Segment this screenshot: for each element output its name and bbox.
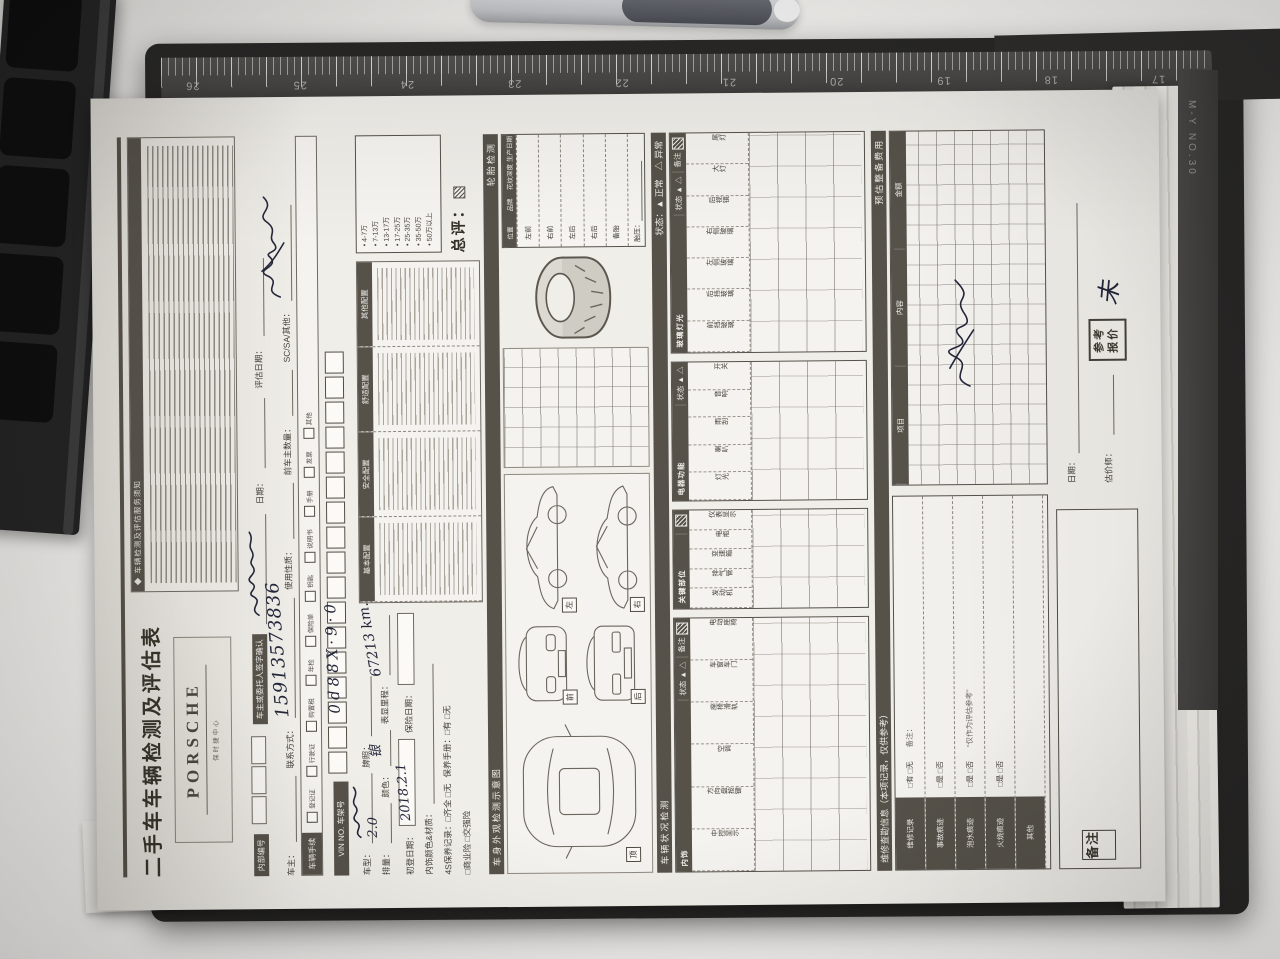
vin-row: VIN NO. 车架号 0d88X·9·0 bbox=[323, 135, 353, 875]
documents-items: 登记证 行驶证 购置税 年检 保险单 钥匙 bbox=[303, 412, 318, 823]
config-column: 安全配置 bbox=[358, 431, 481, 517]
check-item: 喇叭 bbox=[689, 445, 751, 473]
ruler-number: 19 bbox=[936, 74, 950, 86]
laptop-key bbox=[0, 340, 58, 423]
header-row-2: 车主： 联系方式： 15913573836 使用性质： 前车主数量： SC/SA… bbox=[267, 136, 297, 876]
repair-row-extra: “仅作为评估参考” bbox=[964, 689, 976, 747]
ruler-number: 23 bbox=[507, 77, 521, 89]
view-tag-front: 前 bbox=[563, 689, 578, 704]
document-item-label: 其他 bbox=[303, 412, 313, 425]
tire-column-header: 品牌 bbox=[502, 191, 516, 219]
checkbox bbox=[305, 721, 316, 732]
tire-column-header: 生产日期 bbox=[502, 135, 516, 163]
price-range-item: • 7-13万 bbox=[371, 142, 383, 246]
cost-table-signature-scribble bbox=[935, 274, 984, 394]
document-item: 购置税 bbox=[305, 698, 316, 732]
check-item: 中控显示 bbox=[692, 829, 754, 872]
config-fine-print bbox=[378, 352, 476, 425]
laptop-key bbox=[5, 0, 82, 72]
check-item: 开关 bbox=[688, 362, 750, 390]
inspection-form: 二手车车辆检测及评估表 PORSCHE 保时捷中心 ◆ 车辆检测及评估服务须知 … bbox=[97, 103, 1164, 902]
document-item-label: 手册 bbox=[304, 490, 314, 503]
paint-check-grid bbox=[503, 347, 650, 468]
tire-section-label: 轮胎检测 bbox=[484, 142, 497, 186]
document-item: 登记证 bbox=[306, 789, 317, 823]
color-line: 银 bbox=[379, 730, 391, 766]
repair-row-options: □是 □否 bbox=[994, 761, 1005, 787]
condition-section-label: 车辆状况检测 bbox=[658, 799, 672, 865]
check-item: 左侧玻璃 bbox=[687, 258, 749, 290]
form-header: 二手车车辆检测及评估表 PORSCHE 保时捷中心 ◆ 车辆检测及评估服务须知 bbox=[127, 136, 243, 877]
handwritten-reg-date: 2018.2.1 bbox=[394, 763, 414, 822]
price-range-item: • 25-35万 bbox=[403, 142, 415, 246]
sc-sa-label: SC/SA/其他： bbox=[280, 309, 292, 362]
reg-date-box: 2018.2.1 bbox=[398, 739, 416, 827]
check-item: 大灯 bbox=[686, 164, 748, 196]
ruler-number: 25 bbox=[293, 79, 307, 91]
laptop-key bbox=[0, 77, 76, 160]
logo-rule bbox=[205, 665, 207, 815]
cost-column-header: 金额 bbox=[892, 132, 904, 250]
check-item: 右侧玻璃 bbox=[687, 227, 749, 259]
handwritten-not-yet: 未 bbox=[1088, 279, 1125, 306]
contact-line: 15913573836 bbox=[283, 598, 296, 718]
ruler-number: 22 bbox=[614, 76, 628, 88]
usage-line bbox=[282, 483, 294, 539]
diagram-band: 顶 前 后 bbox=[501, 133, 651, 874]
interior-line bbox=[421, 664, 434, 804]
car-side-right-view bbox=[581, 480, 644, 615]
document-item: 年检 bbox=[305, 659, 316, 686]
mileage-label: 表显里程： bbox=[379, 682, 391, 725]
repair-row: 火烧痕迹 □是 □否 bbox=[983, 496, 1016, 869]
reg-date-label: 初登日期： bbox=[404, 832, 416, 875]
check-item: 座椅滑轨 bbox=[691, 702, 753, 745]
document-item-label: 说明书 bbox=[304, 529, 314, 549]
check-tables-band: 内饰状态 ▲ △备注 中控显示方向盘按键空调座椅滑轨车窗车门电动座椅 关键部位 … bbox=[669, 131, 871, 873]
note-header: 备注 bbox=[676, 618, 688, 657]
checkbox bbox=[305, 636, 316, 647]
document-item-label: 行驶证 bbox=[306, 744, 316, 764]
config-column: 舒适配置 bbox=[358, 346, 481, 432]
document-item-label: 钥匙 bbox=[305, 575, 315, 588]
internal-no-label: 内部编号 bbox=[254, 834, 269, 876]
mileage-line: 67213 km. bbox=[378, 616, 391, 676]
stamp-icon bbox=[675, 514, 687, 526]
cost-column-header: 内容 bbox=[893, 249, 905, 367]
check-table-name: 内饰 bbox=[679, 844, 690, 871]
form-title: 二手车车辆检测及评估表 bbox=[135, 624, 166, 877]
ruler-number: 17 bbox=[1151, 73, 1165, 85]
overall-grade-label: 总评： bbox=[447, 134, 469, 252]
check-grid bbox=[752, 509, 865, 608]
valuer-label: 估价师： bbox=[1102, 449, 1114, 483]
tire-table: 位置品牌花纹深度生产日期 左前 右前 左后 bbox=[501, 133, 646, 248]
displacement-line: 2.0 bbox=[380, 804, 392, 844]
status-header: 状态 ▲ △ bbox=[674, 362, 685, 405]
check-item: 前挡玻璃 bbox=[687, 321, 749, 353]
check-table-key-parts: 关键部位 发动机排气管变速箱电瓶仪表显示 bbox=[672, 508, 869, 610]
ruler-brand-text: M-Y NO.30 bbox=[1186, 100, 1197, 177]
tire-position: 右后 bbox=[590, 218, 600, 246]
check-item: 尾灯 bbox=[686, 133, 748, 165]
car-diagram-panel: 顶 前 后 bbox=[504, 473, 653, 874]
footer-right: 日期： 估价师： 参考 报价 未 bbox=[1059, 129, 1138, 484]
tire-table-row: 左前 bbox=[516, 135, 539, 247]
maintenance-record-options: 4S保养记录：□齐全 □无 bbox=[441, 784, 454, 875]
price-range-item: • 4-7万 bbox=[360, 142, 372, 246]
repair-table: 维修记录 □有 □无 备注： 事故痕迹 □是 □否 泡水痕迹 □是 □否 “仅作… bbox=[892, 494, 1051, 870]
stamp-icon bbox=[676, 622, 688, 634]
repair-row-label: 事故痕迹 bbox=[926, 797, 956, 869]
handwritten-displacement: 2.0 bbox=[366, 817, 381, 838]
status-header: 状态 ▲ △ bbox=[677, 657, 688, 700]
check-table-name: 关键部位 bbox=[676, 564, 687, 608]
tire-table-row: 左后 bbox=[560, 134, 583, 246]
eval-date-label: 评估日期： bbox=[253, 346, 265, 389]
config-column: 其他配置 bbox=[357, 261, 480, 347]
brand-subtitle: 保时捷中心 bbox=[209, 638, 221, 842]
check-table-name: 玻璃灯光 bbox=[674, 308, 685, 352]
brand-name: PORSCHE bbox=[182, 638, 204, 842]
repair-row-label: 其他 bbox=[1016, 796, 1046, 868]
vin-boxes: 0d88X·9·0 bbox=[325, 348, 353, 773]
color-label: 颜色： bbox=[379, 772, 391, 798]
check-grid bbox=[753, 617, 867, 871]
owner-label: 车主： bbox=[285, 850, 297, 876]
documents-row: 车辆手续 登记证 行驶证 购置税 年检 保险单 bbox=[295, 136, 323, 876]
config-column: 基本配置 bbox=[359, 516, 482, 602]
porsche-logo: PORSCHE 保时捷中心 bbox=[173, 636, 233, 842]
document-item: 钥匙 bbox=[304, 575, 315, 602]
check-table-name: 电器功能 bbox=[675, 456, 686, 500]
document-item-label: 登记证 bbox=[307, 789, 317, 809]
quote-row: 估价师： 参考 报价 未 bbox=[1087, 129, 1128, 483]
checkbox bbox=[306, 766, 317, 777]
laptop-key bbox=[0, 165, 70, 248]
check-item: 电动座椅 bbox=[690, 618, 752, 661]
config-column-header: 基本配置 bbox=[359, 517, 375, 601]
checkbox bbox=[304, 591, 315, 602]
ruler-side-arm: M-Y NO.30 bbox=[1178, 70, 1218, 710]
view-tag-right: 右 bbox=[630, 597, 645, 612]
valuer-line bbox=[1102, 375, 1115, 435]
config-fine-print bbox=[378, 437, 476, 510]
signature-scribble-large bbox=[253, 195, 290, 301]
tire-table-header: 位置品牌花纹深度生产日期 bbox=[502, 135, 517, 247]
repair-row: 事故痕迹 □是 □否 bbox=[923, 496, 956, 869]
model-scribble bbox=[348, 784, 364, 840]
owner-confirm-label: 车主或委托人签字确认 bbox=[252, 634, 268, 724]
terms-fine-print bbox=[147, 145, 237, 583]
form-top-rule bbox=[117, 137, 127, 877]
view-tag-left: 左 bbox=[562, 597, 577, 612]
cost-table: 项目内容金额 bbox=[889, 129, 1048, 485]
check-item: 音响 bbox=[688, 390, 750, 418]
marker-pen-tip bbox=[774, 0, 801, 22]
price-range-item: • 50万以上 bbox=[425, 142, 437, 246]
car-side-left-view bbox=[511, 480, 574, 615]
ruler-number: 20 bbox=[829, 75, 843, 87]
contact-label: 联系方式： bbox=[284, 726, 296, 769]
documents-label: 车辆手续 bbox=[302, 833, 322, 875]
check-item: 空调 bbox=[691, 744, 753, 787]
config-fine-print bbox=[377, 267, 475, 340]
price-range-item: • 17-25万 bbox=[392, 142, 404, 246]
marker-pen-cap bbox=[622, 0, 773, 26]
check-item: 后挡玻璃 bbox=[687, 289, 749, 321]
checkbox bbox=[306, 812, 317, 823]
car-top-view bbox=[515, 716, 644, 867]
config-column-header: 其他配置 bbox=[357, 262, 373, 346]
check-item: 变速箱 bbox=[689, 549, 751, 569]
prev-owners-line bbox=[281, 370, 293, 416]
photo-of-inspection-form: { "photo": { "desk_color": "#e6e5e2", "c… bbox=[0, 0, 1280, 959]
confirm-date-label: 日期： bbox=[254, 479, 266, 505]
checkbox bbox=[305, 675, 316, 686]
price-range-item: • 35-50万 bbox=[414, 142, 426, 246]
document-item: 其他 bbox=[303, 412, 314, 439]
ruler-number: 26 bbox=[185, 79, 199, 91]
document-item-label: 购置税 bbox=[306, 698, 316, 718]
tire-table-row: 右后 bbox=[582, 134, 605, 246]
repair-row-options: □是 □否 bbox=[934, 761, 945, 787]
notes-label: 备注 bbox=[1082, 830, 1116, 860]
ins-date-label: 保险日期： bbox=[403, 690, 415, 733]
repair-row-options: □有 □无 bbox=[904, 761, 915, 787]
document-item-label: 保险单 bbox=[305, 614, 315, 634]
repair-section-label: 维修查勘信息（本项记录，仅供参考） bbox=[877, 710, 891, 863]
config-table: 基本配置 安全配置 舒适配置 其他配置 bbox=[356, 260, 483, 603]
tire-pressure: 胎压： bbox=[627, 134, 645, 246]
note-header: 备注 bbox=[672, 133, 684, 172]
owner-line bbox=[284, 776, 297, 842]
check-table-electrics: 电器功能状态 ▲ △ 灯光喇叭雨刮音响开关 bbox=[671, 360, 868, 502]
check-item: 仪表显示 bbox=[689, 510, 751, 530]
check-item: 雨刮 bbox=[688, 417, 750, 445]
plate-line bbox=[360, 676, 373, 736]
check-table-glass-lights: 玻璃灯光状态 ▲ △备注 前挡玻璃后挡玻璃左侧玻璃右侧玻璃后视镜大灯尾灯 bbox=[669, 131, 867, 354]
config-fine-print bbox=[379, 522, 477, 595]
ruler-number: 21 bbox=[722, 76, 736, 88]
vin-label: VIN NO. 车架号 bbox=[333, 781, 349, 875]
laptop-key bbox=[0, 253, 64, 336]
terms-box: ◆ 车辆检测及评估服务须知 bbox=[127, 136, 239, 592]
view-tag-top: 顶 bbox=[626, 847, 641, 862]
document-item: 手册 bbox=[303, 490, 314, 517]
check-item: 方向盘按键 bbox=[692, 787, 754, 830]
tire-table-row: 备胎 bbox=[605, 134, 628, 246]
checkbox bbox=[304, 506, 315, 517]
check-item: 电瓶 bbox=[689, 530, 751, 550]
tire-position: 右前 bbox=[545, 219, 555, 247]
check-grid bbox=[751, 361, 864, 500]
cost-column-header: 项目 bbox=[894, 367, 906, 485]
repair-row: 泡水痕迹 □是 □否 “仅作为评估参考” bbox=[953, 496, 986, 869]
booklet-options: 保养手册：□有 □无 bbox=[441, 705, 454, 777]
ins-date-box bbox=[397, 613, 415, 685]
ruler-number: 18 bbox=[1044, 73, 1058, 85]
insurance-options: □商业险 □交强险 bbox=[461, 811, 474, 875]
config-column-header: 舒适配置 bbox=[358, 347, 374, 431]
repair-row-label: 泡水痕迹 bbox=[956, 797, 986, 869]
grade-panel: • 4-7万• 7-13万• 13-17万• 17-25万• 25-35万• 3… bbox=[355, 134, 469, 253]
interior-label: 内饰颜色&材质： bbox=[423, 810, 436, 875]
checkbox bbox=[303, 467, 314, 478]
handwritten-color: 银 bbox=[365, 744, 385, 759]
confirm-date-line bbox=[253, 399, 266, 469]
footer-band: 备注 日期： 估价师： 参考 报价 未 bbox=[1053, 129, 1143, 870]
repair-row-options: □是 □否 bbox=[964, 761, 975, 787]
tire-position: 左后 bbox=[568, 218, 578, 246]
internal-no-boxes bbox=[250, 734, 269, 824]
checkbox bbox=[304, 552, 315, 563]
stamp-icon bbox=[672, 137, 684, 149]
tire-column-header: 位置 bbox=[503, 219, 517, 247]
footer-date-line bbox=[1065, 203, 1079, 453]
check-item: 灯光 bbox=[689, 472, 751, 500]
tire-position: 备胎 bbox=[612, 218, 622, 246]
inspection-sheet: 二手车车辆检测及评估表 PORSCHE 保时捷中心 ◆ 车辆检测及评估服务须知 … bbox=[90, 89, 1165, 910]
vehicle-info-band: 车型： 牌照： 排量： 2.0 颜色： 银 bbox=[355, 134, 483, 875]
view-tag-rear: 后 bbox=[631, 689, 646, 704]
check-table-interior: 内饰状态 ▲ △备注 中控显示方向盘按键空调座椅滑轨车窗车门电动座椅 bbox=[673, 616, 871, 873]
cost-section-label: 预估整备费用 bbox=[872, 139, 886, 205]
tire-table-rows: 左前 右前 左后 右后 bbox=[516, 134, 628, 247]
vehicle-info-fields: 车型： 牌照： 排量： 2.0 颜色： 银 bbox=[359, 612, 483, 875]
repair-row: 其他 bbox=[1013, 495, 1046, 868]
terms-title: ◆ 车辆检测及评估服务须知 bbox=[128, 138, 145, 591]
diagram-section-label: 车身外观检测示意图 bbox=[489, 767, 503, 866]
note-header bbox=[675, 510, 687, 534]
check-item: 车窗车门 bbox=[690, 660, 752, 703]
check-item: 后视镜 bbox=[686, 196, 748, 228]
tire-column-header: 花纹深度 bbox=[502, 163, 516, 191]
tire-position: 左前 bbox=[523, 219, 533, 247]
document-item-label: 年检 bbox=[305, 659, 315, 672]
notes-box: 备注 bbox=[1056, 509, 1141, 870]
price-range-legend: • 4-7万• 7-13万• 13-17万• 17-25万• 25-35万• 3… bbox=[355, 135, 442, 254]
ruler-number: 24 bbox=[400, 78, 414, 90]
document-item: 说明书 bbox=[304, 529, 315, 563]
status-legend: 状态：▲ 正常 △ 异常 bbox=[652, 141, 666, 236]
config-column-header: 安全配置 bbox=[358, 432, 374, 516]
document-item: 保险单 bbox=[304, 614, 315, 648]
usage-label: 使用性质： bbox=[282, 547, 294, 590]
check-item: 发动机 bbox=[690, 588, 752, 608]
displacement-label: 排量： bbox=[380, 850, 392, 876]
repair-row-label: 火烧痕迹 bbox=[986, 797, 1016, 869]
reference-quote-stamp: 参考 报价 bbox=[1088, 319, 1126, 361]
model-label: 车型： bbox=[361, 850, 373, 876]
checkbox bbox=[303, 428, 314, 439]
price-range-item: • 13-17万 bbox=[382, 142, 394, 246]
repair-row: 维修记录 □有 □无 备注： bbox=[893, 496, 926, 869]
check-grid bbox=[749, 132, 863, 352]
tire-illustration bbox=[512, 253, 639, 342]
footer-date-row: 日期： bbox=[1059, 129, 1080, 483]
repair-row-extra: 备注： bbox=[904, 725, 915, 748]
tire-table-row: 右前 bbox=[538, 135, 561, 247]
repair-cost-band: 维修记录 □有 □无 备注： 事故痕迹 □是 □否 泡水痕迹 □是 □否 “仅作… bbox=[889, 129, 1051, 870]
marker-pen bbox=[470, 0, 801, 30]
stamp-icon bbox=[453, 186, 465, 198]
status-header: 状态 ▲ △ bbox=[673, 173, 684, 216]
footer-date-label: 日期： bbox=[1067, 458, 1077, 484]
document-item: 发票 bbox=[303, 451, 314, 478]
document-item-label: 发票 bbox=[304, 451, 314, 464]
document-item: 行驶证 bbox=[306, 744, 317, 778]
sc-sa-line bbox=[279, 205, 292, 301]
prev-owners-label: 前车主数量： bbox=[281, 424, 293, 475]
repair-row-label: 维修记录 bbox=[896, 797, 926, 869]
check-item: 排气管 bbox=[690, 569, 752, 589]
